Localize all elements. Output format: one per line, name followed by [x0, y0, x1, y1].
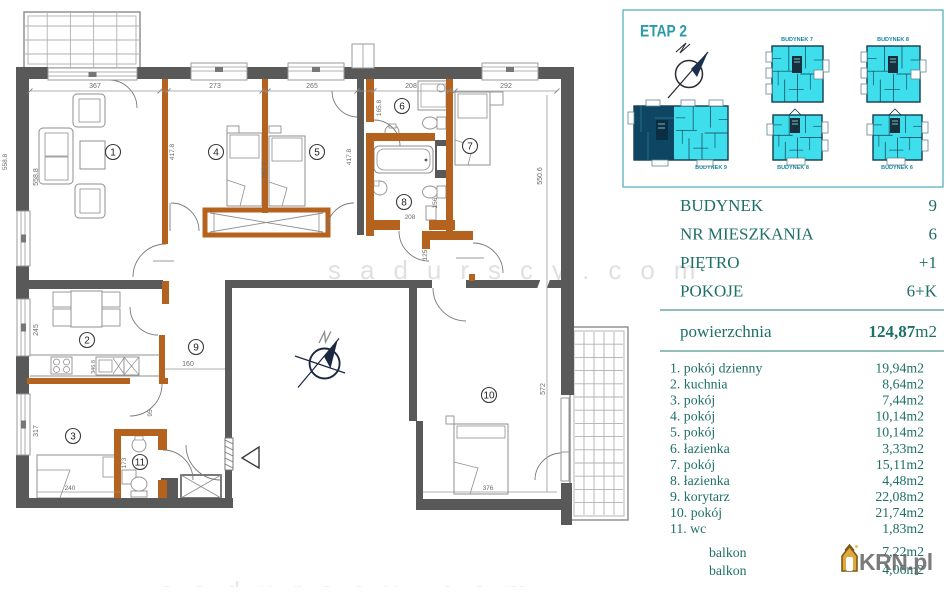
svg-text:265: 265 [306, 83, 318, 90]
svg-text:10. pokój: 10. pokój [670, 505, 722, 520]
svg-text:124,87m2: 124,87m2 [869, 322, 937, 341]
svg-text:9: 9 [193, 342, 199, 353]
svg-text:22,08m2: 22,08m2 [875, 489, 924, 504]
svg-text:+1: +1 [919, 253, 937, 272]
svg-text:2: 2 [84, 335, 90, 346]
svg-text:6. łazienka: 6. łazienka [670, 441, 730, 456]
svg-text:sadurscy.com: sadurscy.com [160, 576, 546, 587]
svg-text:BUDYNEK: BUDYNEK [680, 196, 764, 215]
svg-text:10,14m2: 10,14m2 [875, 409, 924, 424]
svg-text:BUDYNEK 6: BUDYNEK 6 [881, 165, 913, 171]
svg-text:5. pokój: 5. pokój [670, 425, 715, 440]
svg-text:7. pokój: 7. pokój [670, 457, 715, 472]
svg-text:15,11m2: 15,11m2 [876, 457, 924, 472]
svg-text:1. pokój dzienny: 1. pokój dzienny [670, 361, 762, 376]
svg-text:ETAP 2: ETAP 2 [640, 22, 687, 41]
svg-text:6: 6 [399, 101, 405, 112]
svg-text:357.9: 357.9 [261, 161, 268, 178]
svg-text:417.8: 417.8 [169, 143, 176, 160]
svg-text:125: 125 [422, 249, 429, 260]
svg-text:9. korytarz: 9. korytarz [670, 489, 730, 504]
svg-text:558.8: 558.8 [2, 153, 9, 170]
svg-text:9: 9 [929, 196, 938, 215]
svg-text:367: 367 [89, 83, 101, 90]
svg-text:376: 376 [483, 485, 494, 492]
svg-text:11: 11 [135, 457, 146, 468]
svg-text:572: 572 [540, 383, 547, 395]
svg-text:19,94m2: 19,94m2 [875, 361, 924, 376]
svg-text:245: 245 [33, 324, 40, 336]
svg-text:558.8: 558.8 [33, 168, 40, 186]
svg-text:3,33m2: 3,33m2 [882, 441, 924, 456]
svg-text:417.8: 417.8 [346, 148, 353, 165]
svg-text:208: 208 [405, 214, 416, 221]
svg-text:7: 7 [467, 141, 473, 152]
svg-text:7,44m2: 7,44m2 [882, 393, 924, 408]
svg-text:5: 5 [314, 147, 320, 158]
svg-text:8: 8 [401, 197, 407, 208]
svg-text:1: 1 [110, 147, 116, 158]
svg-text:2. kuchnia: 2. kuchnia [670, 377, 727, 392]
svg-text:173: 173 [121, 457, 128, 468]
svg-text:BUDYNEK 7: BUDYNEK 7 [781, 37, 813, 43]
svg-text:balkon: balkon [709, 563, 747, 578]
svg-text:BUDYNEK 8: BUDYNEK 8 [777, 165, 809, 171]
svg-text:21,74m2: 21,74m2 [875, 505, 924, 520]
svg-text:KRN.pl: KRN.pl [859, 549, 933, 575]
svg-text:balkon: balkon [709, 545, 747, 560]
svg-text:6+K: 6+K [907, 282, 938, 301]
svg-text:95: 95 [147, 409, 154, 417]
svg-text:11. wc: 11. wc [670, 521, 706, 536]
svg-text:10,14m2: 10,14m2 [875, 425, 924, 440]
svg-text:10: 10 [483, 390, 495, 401]
svg-text:BUDYNEK 8: BUDYNEK 8 [877, 37, 909, 43]
svg-text:NR MIESZKANIA: NR MIESZKANIA [680, 225, 814, 244]
svg-text:8,64m2: 8,64m2 [882, 377, 924, 392]
svg-text:8. łazienka: 8. łazienka [670, 473, 730, 488]
svg-text:4. pokój: 4. pokój [670, 409, 715, 424]
svg-text:273: 273 [209, 83, 221, 90]
svg-text:6: 6 [929, 225, 938, 244]
svg-text:3. pokój: 3. pokój [670, 393, 715, 408]
svg-text:PIĘTRO: PIĘTRO [680, 253, 740, 272]
svg-text:1,83m2: 1,83m2 [882, 521, 924, 536]
svg-text:550.6: 550.6 [537, 167, 544, 185]
svg-text:165.8: 165.8 [376, 99, 383, 116]
svg-text:4: 4 [213, 147, 219, 158]
svg-text:240: 240 [65, 485, 76, 492]
svg-text:4,48m2: 4,48m2 [882, 473, 924, 488]
svg-text:3: 3 [70, 431, 76, 442]
svg-text:powierzchnia: powierzchnia [680, 322, 772, 341]
svg-text:317: 317 [33, 425, 40, 437]
svg-text:208: 208 [405, 83, 417, 90]
svg-text:POKOJE: POKOJE [680, 282, 743, 301]
svg-text:292: 292 [500, 83, 512, 90]
svg-text:156: 156 [432, 197, 439, 208]
svg-text:160: 160 [182, 361, 194, 368]
svg-text:346.8: 346.8 [91, 360, 97, 374]
